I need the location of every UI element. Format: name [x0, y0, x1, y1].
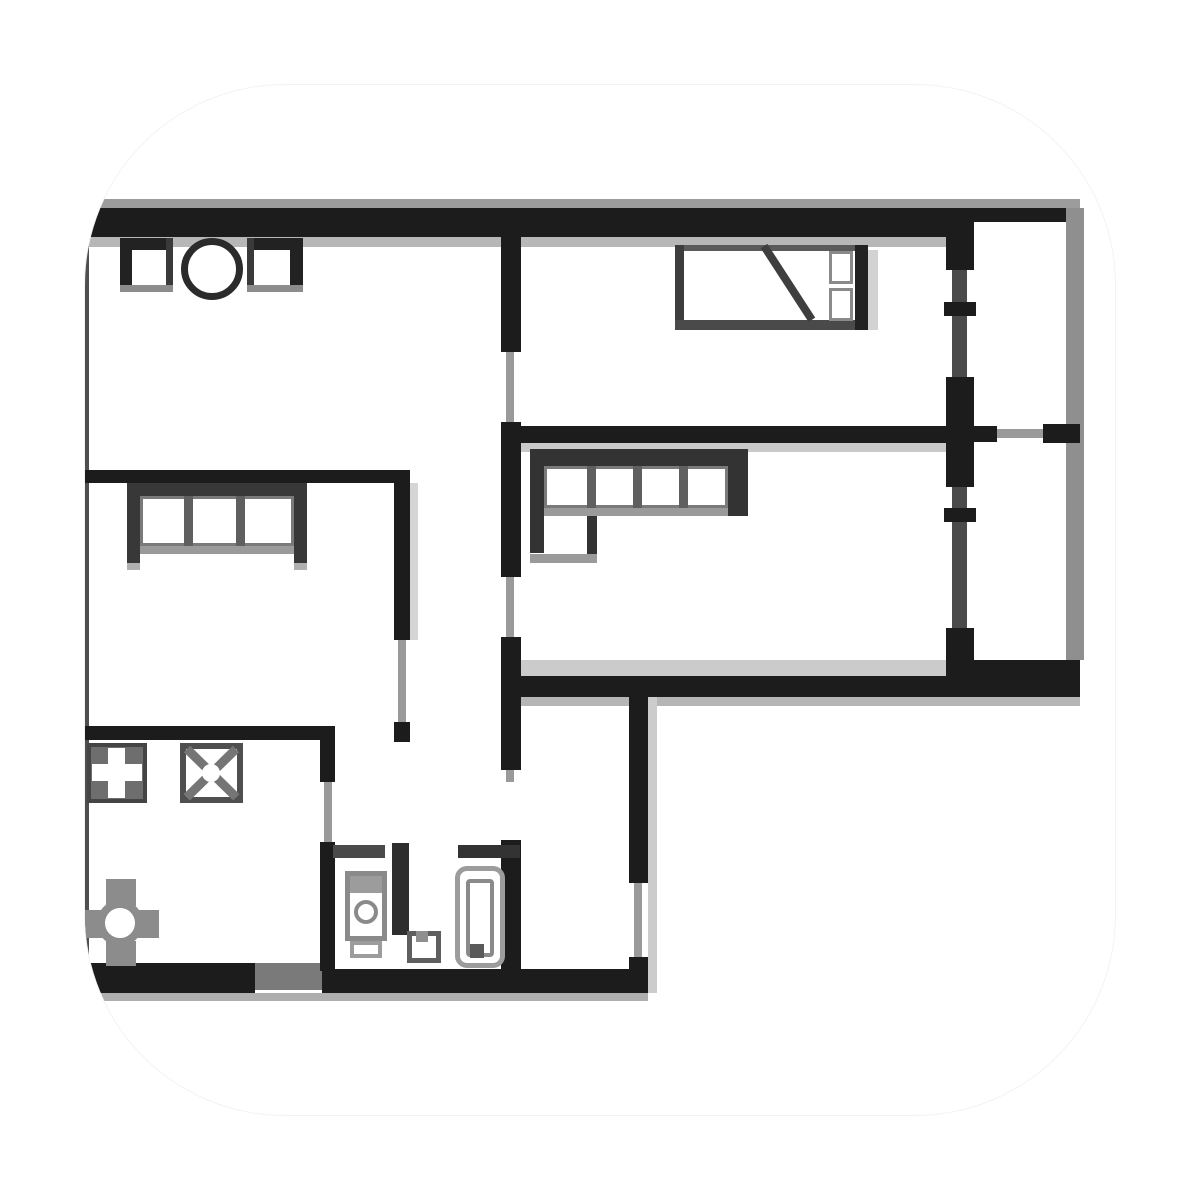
sofa-living-return-bottom: [530, 554, 597, 563]
kitchen-hob-center: [202, 764, 220, 782]
top-wall-balcony: [950, 208, 1080, 222]
bed-frame-left: [675, 245, 684, 330]
balcony-door-seg-b: [1043, 424, 1080, 443]
bed-pillow-2: [829, 288, 853, 321]
central-wall-mid: [501, 422, 521, 577]
sofa-left-seat: [140, 496, 294, 546]
top-wall-main: [88, 208, 950, 237]
bathtub-drain: [470, 944, 484, 958]
balcony-window-tick-2: [944, 508, 976, 522]
washer-drum: [354, 900, 378, 924]
stove-circle: [181, 238, 243, 300]
sofa-left-front-edge: [140, 546, 294, 554]
bed-shadow: [868, 250, 878, 330]
sofa-left-arm-left: [127, 483, 140, 563]
counter-square-2-bottom: [247, 285, 303, 292]
bath-top-wall-a: [333, 845, 385, 858]
stock-image-canvas: [0, 0, 1200, 1200]
bath-top-wall-b: [458, 845, 520, 858]
sofa-left-arm-right: [294, 483, 307, 563]
balcony-door-line: [997, 429, 1043, 438]
living-door-opening: [506, 577, 514, 637]
bath-divider-wall: [392, 843, 409, 935]
kitchen-sink-frame: [87, 743, 147, 803]
counter-square-1-left: [120, 238, 132, 292]
apartment-floor-plan: [85, 85, 1115, 1115]
counter-square-1-bottom: [120, 285, 173, 292]
sofa-living-divider-2: [633, 466, 642, 508]
leftroom-right-wall-b: [394, 722, 410, 742]
bedroom-living-wall: [513, 426, 952, 443]
hall-right-wall-a: [629, 697, 648, 883]
kitchen-door-opening: [324, 782, 332, 842]
round-table: [97, 900, 143, 946]
bed-frame-bottom: [675, 320, 868, 330]
central-wall-stub: [506, 770, 514, 782]
living-floor-strip: [517, 660, 950, 676]
floor-plan-tile: [85, 85, 1115, 1115]
living-bottom-wall: [513, 676, 952, 697]
leftroom-top-wall: [85, 470, 410, 483]
sofa-left-divider-2: [236, 496, 245, 546]
central-wall-lower: [501, 637, 521, 770]
toilet-tank-notch: [416, 931, 428, 942]
sofa-left-back: [127, 483, 307, 496]
sofa-left-foot-right: [294, 563, 307, 570]
left-exterior-wall: [85, 237, 89, 963]
sofa-living-divider-1: [587, 466, 596, 508]
under-living-wall-strip: [513, 697, 1080, 706]
bottom-under-strip: [85, 993, 648, 1001]
sofa-left-divider-1: [184, 496, 193, 546]
bottom-wall-left: [85, 963, 255, 993]
bath-left-wall: [320, 842, 335, 971]
balcony-pier-mid: [946, 377, 974, 487]
leftroom-door-opening: [398, 640, 406, 722]
counter-square-2-right: [290, 238, 303, 292]
bottom-wall-entry: [255, 963, 322, 990]
washer-base: [350, 941, 382, 958]
sofa-living-left-edge: [530, 449, 544, 553]
balcony-pier-top: [946, 222, 974, 270]
sofa-living-front-edge: [544, 508, 728, 516]
central-wall-upper: [501, 237, 521, 352]
sofa-living-back: [530, 449, 745, 466]
balcony-bottom-wall: [950, 660, 1080, 697]
leftroom-right-wall: [394, 470, 410, 640]
counter-square-1-right: [166, 238, 173, 292]
bedroom-door-opening: [506, 352, 514, 422]
leftroom-wall-shadow: [410, 483, 418, 640]
hall-right-window: [634, 883, 642, 957]
bed-pillow-1: [829, 251, 853, 284]
sofa-living-divider-3: [679, 466, 688, 508]
bed-frame-right: [855, 245, 868, 330]
balcony-window-tick-1: [944, 302, 976, 316]
sofa-living-return-edge: [587, 516, 597, 554]
sofa-living-arm-right: [728, 449, 748, 516]
bed-blanket-diagonal: [761, 244, 816, 322]
counter-square-2-left: [247, 238, 254, 292]
kitchen-right-wall: [320, 740, 335, 782]
washer-top-panel: [350, 876, 382, 893]
mid-horizontal-wall: [85, 726, 335, 740]
bottom-wall-bath: [322, 969, 648, 993]
balcony-door-seg-a: [974, 426, 997, 442]
sofa-left-foot-left: [127, 563, 140, 570]
hall-right-wall-b: [629, 957, 648, 993]
hall-wall-shadow: [648, 697, 657, 993]
